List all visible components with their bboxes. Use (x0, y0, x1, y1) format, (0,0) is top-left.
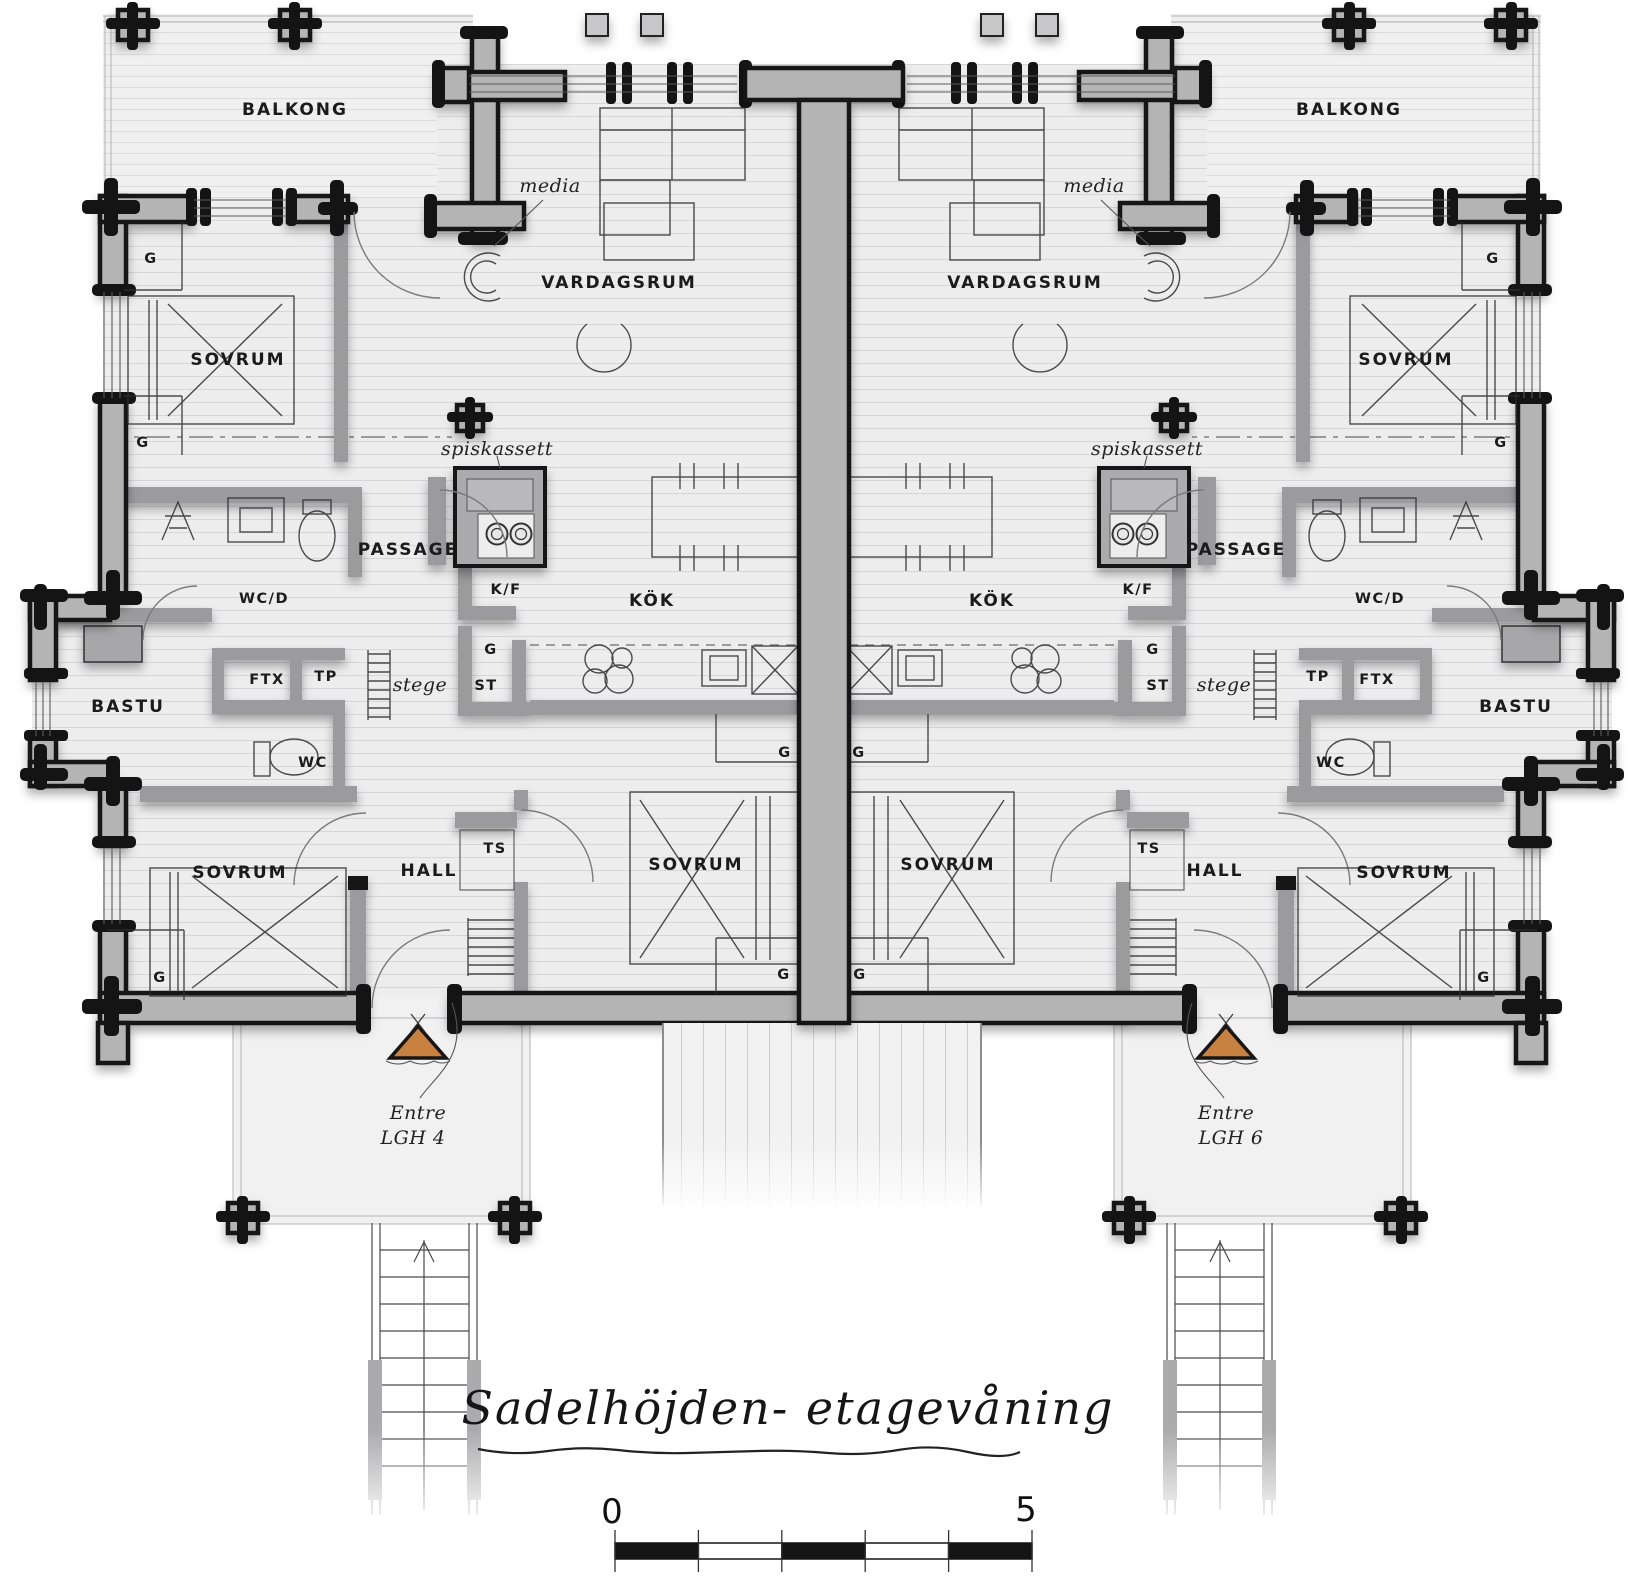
closet-label-g: G (144, 251, 157, 267)
room-label-sovrum-br: SOVRUM (1356, 863, 1451, 883)
floor-plan-drawing: BALKONG media VARDAGSRUM SOVRUM G G spis… (0, 0, 1648, 1582)
closet-label-g: G (1486, 251, 1499, 267)
closet-label-st-right: ST (1146, 678, 1169, 694)
room-label-wc-left: WC (298, 755, 328, 771)
room-label-vardagsrum-right: VARDAGSRUM (947, 273, 1103, 293)
label-lgh4: LGH 4 (380, 1127, 446, 1149)
label-stege-right: stege (1197, 674, 1252, 696)
closet-label-g: G (852, 745, 865, 761)
closet-label-g: G (1494, 435, 1507, 451)
right-apartment-geometry (822, 2, 1624, 1530)
room-label-hall-right: HALL (1186, 861, 1243, 881)
drawing-title: Sadelhöjden- etagevåning (462, 1381, 1115, 1435)
title-block: Sadelhöjden- etagevåning (462, 1381, 1115, 1456)
closet-label-g: G (484, 642, 497, 658)
label-spiskassett-right: spiskassett (1091, 438, 1203, 460)
label-kf-right: K/F (1123, 582, 1154, 598)
closet-label-g: G (1146, 642, 1159, 658)
closet-label-g: G (1477, 970, 1490, 986)
room-label-sovrum-bl: SOVRUM (192, 863, 287, 883)
label-tp-left: TP (314, 669, 338, 685)
scale-end-label: 5 (1015, 1490, 1037, 1530)
entry-stair (360, 1223, 490, 1530)
room-label-hall-left: HALL (400, 861, 457, 881)
floor-plan: BALKONG media VARDAGSRUM SOVRUM G G spis… (0, 0, 1648, 1582)
label-ftx-left: FTX (249, 672, 284, 688)
room-label-kok-right: KÖK (969, 589, 1015, 611)
room-label-media-left: media (519, 175, 580, 197)
label-entre-left: Entre (389, 1102, 447, 1124)
title-underline (478, 1447, 1020, 1456)
room-label-kok-left: KÖK (629, 589, 675, 611)
closet-label-g: G (136, 435, 149, 451)
room-label-sovrum-cr: SOVRUM (900, 855, 995, 875)
room-label-balkong-left: BALKONG (242, 100, 348, 120)
room-label-bastu-left: BASTU (91, 697, 165, 717)
label-tp-right: TP (1306, 669, 1330, 685)
room-label-bastu-right: BASTU (1479, 697, 1553, 717)
closet-label-ts-right: TS (1137, 841, 1160, 857)
label-spiskassett-left: spiskassett (441, 438, 553, 460)
label-lgh6: LGH 6 (1198, 1127, 1264, 1149)
closet-label-g: G (853, 967, 866, 983)
center-deck (662, 1023, 982, 1214)
closet-label-ts-left: TS (483, 841, 506, 857)
room-label-wc-right: WC (1316, 755, 1346, 771)
closet-label-g: G (777, 967, 790, 983)
label-ftx-right: FTX (1359, 672, 1394, 688)
label-kf-left: K/F (491, 582, 522, 598)
fireplace-spiskassett (455, 468, 545, 566)
room-label-sovrum-tl: SOVRUM (190, 350, 285, 370)
scale-start-label: 0 (601, 1492, 623, 1532)
room-label-wcd-left: WC/D (239, 591, 289, 607)
room-label-vardagsrum-left: VARDAGSRUM (541, 273, 697, 293)
closet-label-g: G (778, 745, 791, 761)
room-label-media-right: media (1063, 175, 1124, 197)
scale-bar: 0 5 (601, 1490, 1037, 1572)
room-label-balkong-right: BALKONG (1296, 100, 1402, 120)
closet-label-st-left: ST (474, 678, 497, 694)
left-apartment-geometry (20, 2, 822, 1530)
label-stege-left: stege (393, 674, 448, 696)
room-label-sovrum-tr: SOVRUM (1358, 350, 1453, 370)
room-label-sovrum-cl: SOVRUM (648, 855, 743, 875)
label-entre-right: Entre (1197, 1102, 1255, 1124)
room-label-passage-left: PASSAGE (358, 540, 459, 560)
closet-label-g: G (153, 970, 166, 986)
room-label-passage-right: PASSAGE (1186, 540, 1287, 560)
room-label-wcd-right: WC/D (1355, 591, 1405, 607)
